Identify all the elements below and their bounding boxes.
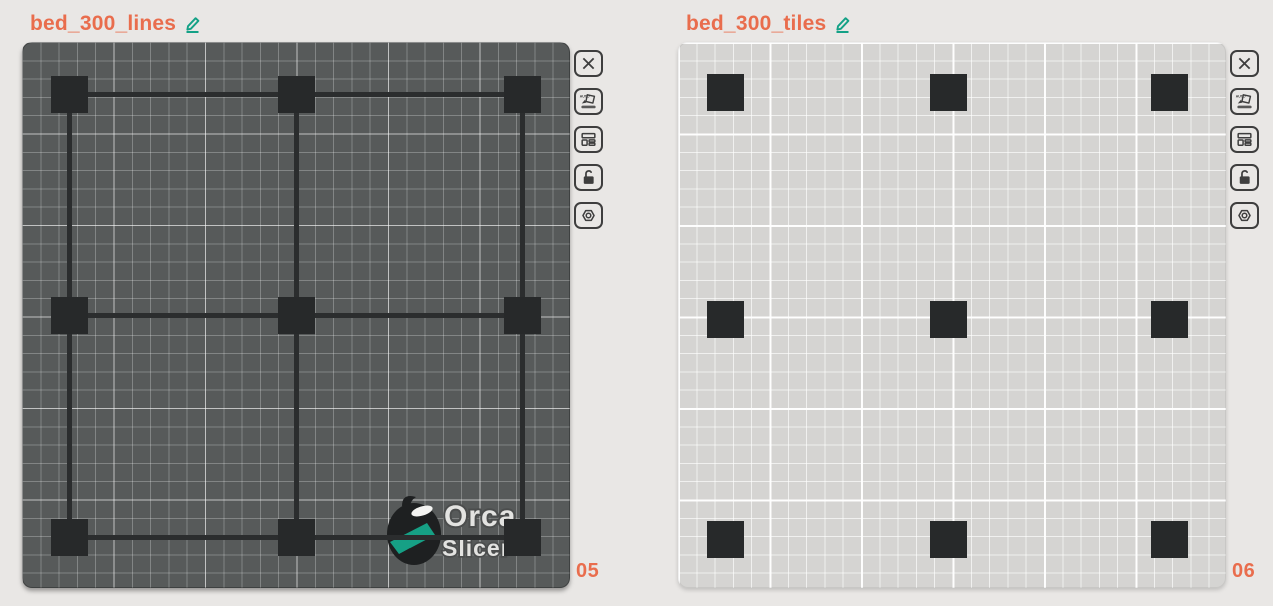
printed-square[interactable] (51, 297, 88, 334)
delete-plate-button[interactable] (1230, 50, 1259, 77)
print-bed[interactable] (678, 42, 1226, 588)
plate-section: bed_300_tiles AUTO (678, 0, 1273, 606)
printed-square[interactable] (930, 301, 967, 338)
printed-square[interactable] (930, 521, 967, 558)
lock-open-icon (1235, 168, 1254, 187)
delete-plate-button[interactable] (574, 50, 603, 77)
arrange-icon (1235, 130, 1254, 149)
plate-name-label: bed_300_tiles (686, 12, 826, 36)
multi-plate-view: { "page": { "background": "#e9e7e5" }, "… (0, 0, 1273, 606)
auto-orient-icon: AUTO (579, 92, 598, 111)
lock-plate-button[interactable] (574, 164, 603, 191)
printed-square[interactable] (707, 521, 744, 558)
printed-square[interactable] (504, 519, 541, 556)
plate-number-label: 06 (1232, 560, 1255, 583)
plate-title: bed_300_lines (30, 11, 203, 37)
printed-square[interactable] (1151, 301, 1188, 338)
printed-square[interactable] (51, 519, 88, 556)
plate-toolbar: AUTO (1230, 50, 1259, 229)
arrange-icon (579, 130, 598, 149)
plate-settings-button[interactable] (1230, 202, 1259, 229)
plate-settings-icon (579, 206, 598, 225)
printed-square[interactable] (278, 76, 315, 113)
auto-orient-button[interactable]: AUTO (574, 88, 603, 115)
printed-square[interactable] (707, 301, 744, 338)
pencil-icon[interactable] (833, 14, 853, 34)
lock-open-icon (579, 168, 598, 187)
printed-square[interactable] (707, 74, 744, 111)
pencil-icon[interactable] (183, 14, 203, 34)
print-bed[interactable]: Orca Slicer (22, 42, 570, 588)
printed-square[interactable] (504, 76, 541, 113)
plate-title: bed_300_tiles (686, 11, 853, 37)
plate-number-label: 05 (576, 560, 599, 583)
printed-square[interactable] (504, 297, 541, 334)
close-icon (1235, 54, 1254, 73)
printed-square[interactable] (51, 76, 88, 113)
lock-plate-button[interactable] (1230, 164, 1259, 191)
auto-orient-button[interactable]: AUTO (1230, 88, 1259, 115)
close-icon (579, 54, 598, 73)
printed-square[interactable] (930, 74, 967, 111)
arrange-plate-button[interactable] (574, 126, 603, 153)
printed-square[interactable] (278, 519, 315, 556)
plate-section: bed_300_lines Orca Slicer AUTO (22, 0, 634, 606)
printed-square[interactable] (278, 297, 315, 334)
plate-toolbar: AUTO (574, 50, 603, 229)
arrange-plate-button[interactable] (1230, 126, 1259, 153)
plate-name-label: bed_300_lines (30, 12, 176, 36)
printed-square[interactable] (1151, 74, 1188, 111)
plate-settings-button[interactable] (574, 202, 603, 229)
printed-square[interactable] (1151, 521, 1188, 558)
plate-settings-icon (1235, 206, 1254, 225)
bed-objects-layer (678, 42, 1226, 588)
auto-orient-icon: AUTO (1235, 92, 1254, 111)
